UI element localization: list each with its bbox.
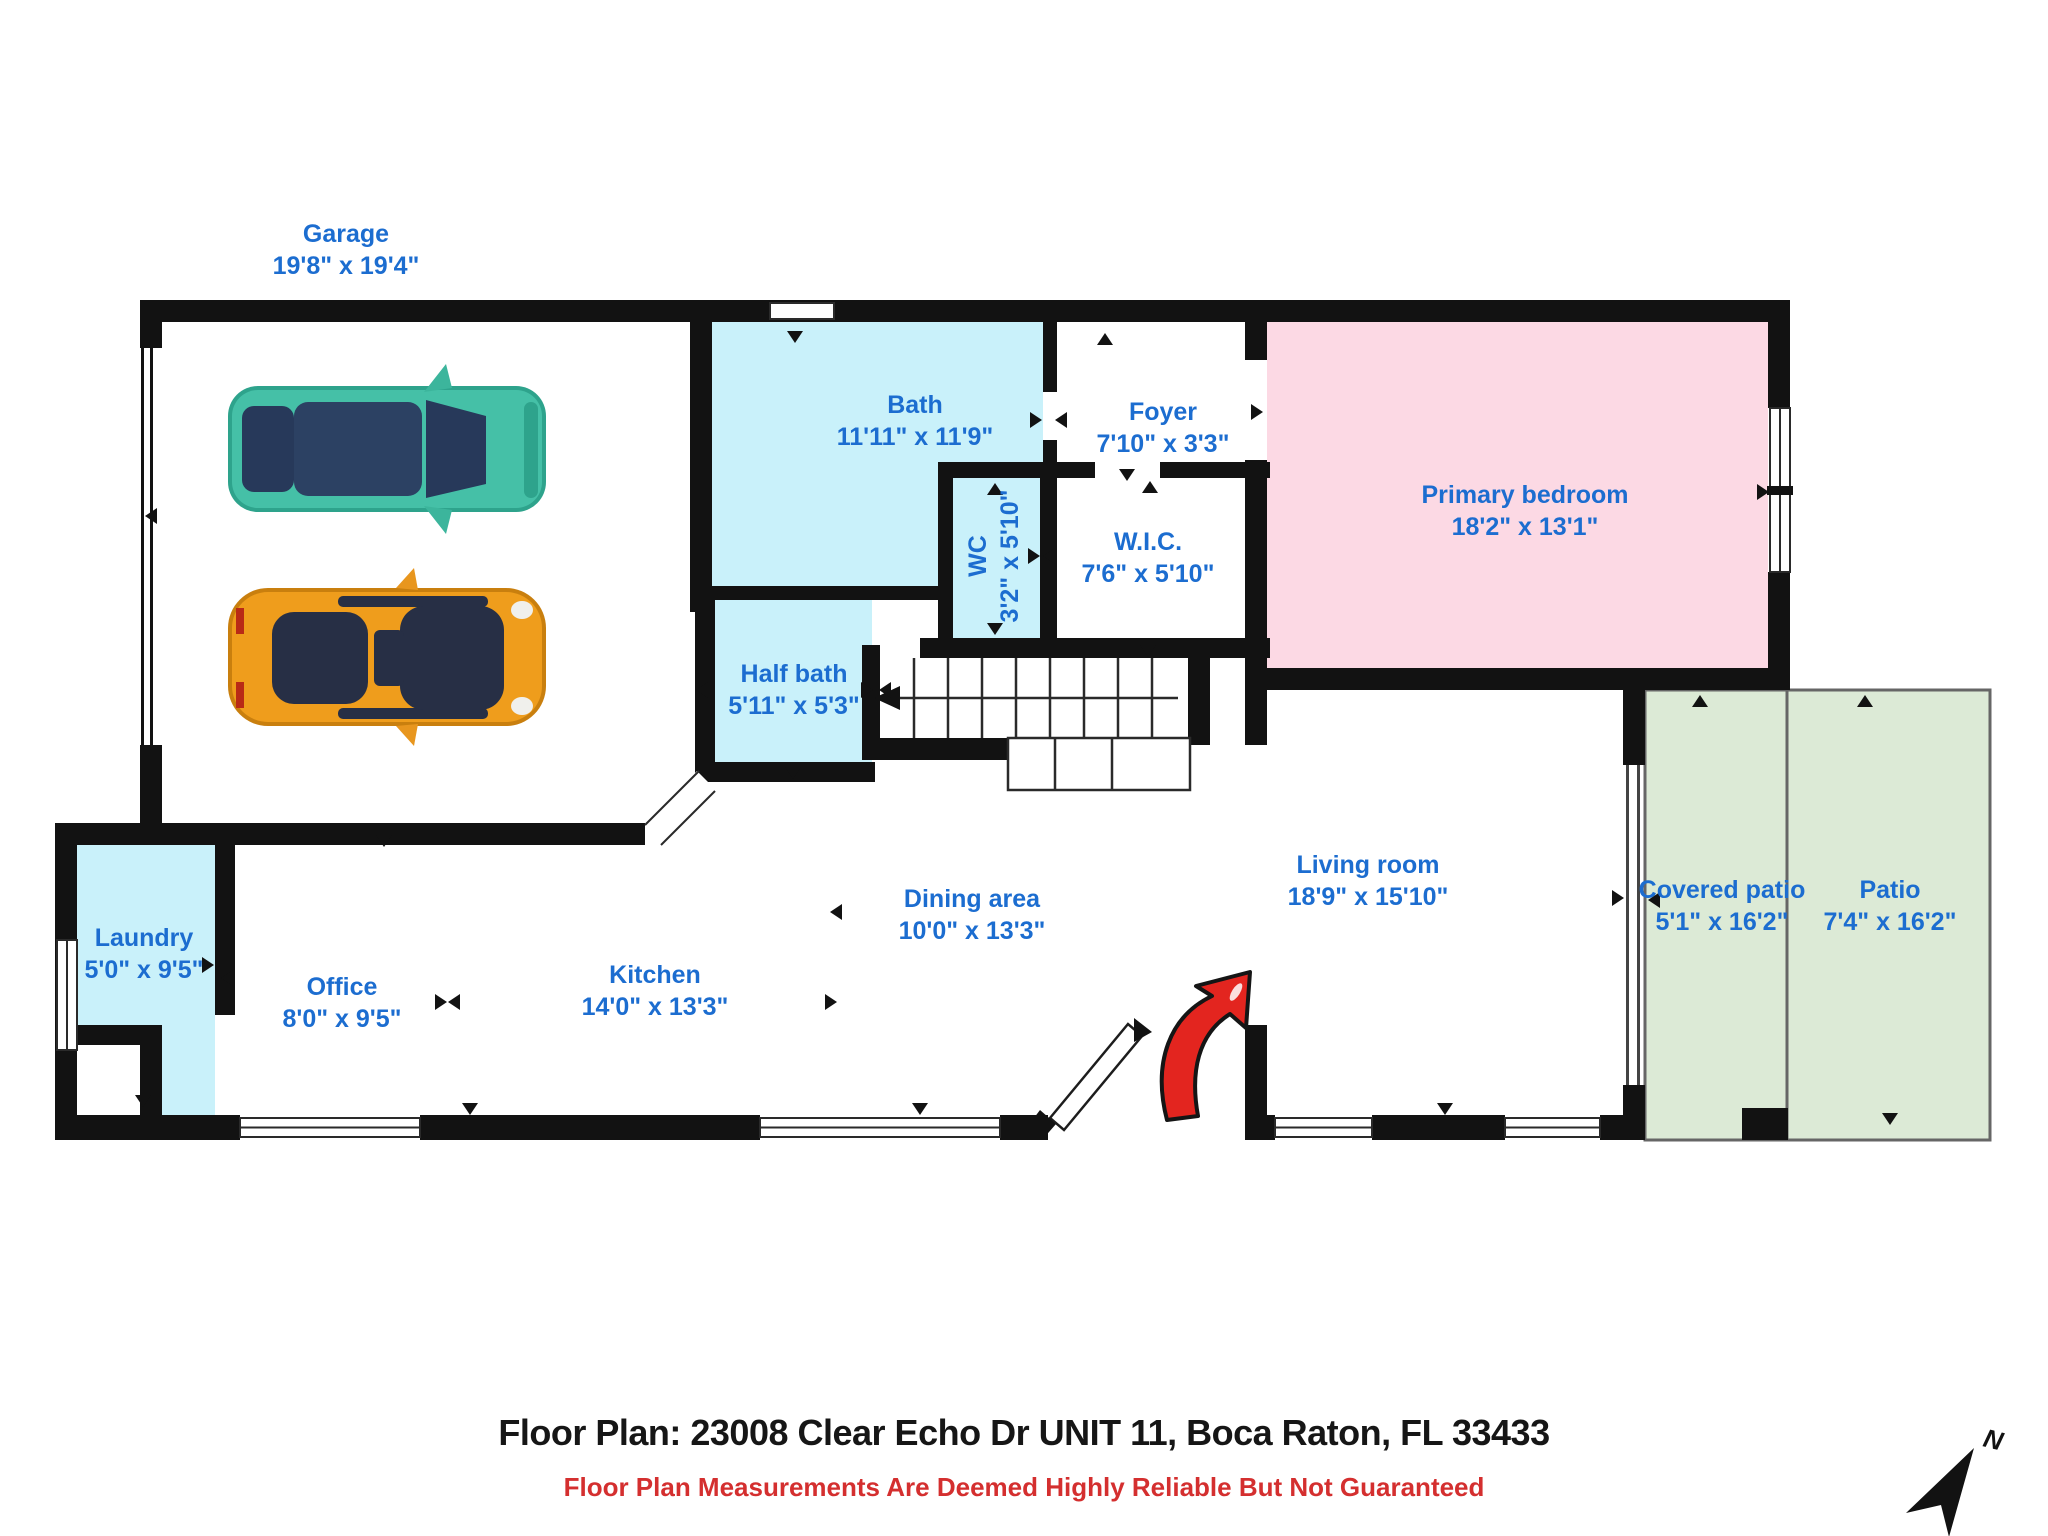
label-half-bath-dims: 5'11" x 5'3" (728, 692, 860, 720)
label-covered-patio-name: Covered patio (1639, 876, 1806, 904)
label-garage-dims: 19'8" x 19'4" (273, 252, 420, 280)
label-living-room-dims: 18'9" x 15'10" (1288, 883, 1449, 911)
label-primary-bedroom-dims: 18'2" x 13'1" (1452, 513, 1599, 541)
label-patio-dims: 7'4" x 16'2" (1824, 908, 1957, 936)
label-bath-dims: 11'11" x 11'9" (837, 423, 994, 451)
label-half-bath-name: Half bath (741, 660, 848, 688)
label-wc-dims: 3'2" x 5'10" (996, 490, 1024, 623)
label-laundry-dims: 5'0" x 9'5" (84, 956, 203, 984)
label-foyer-name: Foyer (1129, 398, 1197, 426)
floor-plan-page: Garage 19'8" x 19'4" Bath 11'11" x 11'9"… (0, 0, 2048, 1536)
room-bath (712, 322, 1043, 478)
label-bath-name: Bath (887, 391, 943, 419)
label-foyer-dims: 7'10" x 3'3" (1097, 430, 1230, 458)
garage-diagonal-door (645, 771, 715, 845)
footer-address-title: Floor Plan: 23008 Clear Echo Dr UNIT 11,… (0, 1412, 2048, 1454)
staircase (874, 658, 1190, 790)
floor-plan-svg: Garage 19'8" x 19'4" Bath 11'11" x 11'9"… (0, 0, 2048, 1536)
footer-disclaimer: Floor Plan Measurements Are Deemed Highl… (0, 1472, 2048, 1503)
car-suv (228, 364, 546, 534)
label-dining-area-dims: 10'0" x 13'3" (899, 917, 1046, 945)
label-dining-area-name: Dining area (904, 885, 1041, 913)
label-garage-name: Garage (303, 220, 389, 248)
label-wic-name: W.I.C. (1114, 528, 1182, 556)
label-wic-dims: 7'6" x 5'10" (1082, 560, 1215, 588)
label-wc-name: WC (964, 535, 992, 577)
label-covered-patio-dims: 5'1" x 16'2" (1656, 908, 1789, 936)
label-primary-bedroom-name: Primary bedroom (1421, 481, 1628, 509)
label-laundry-name: Laundry (95, 924, 194, 952)
label-kitchen-dims: 14'0" x 13'3" (582, 993, 729, 1021)
label-living-room-name: Living room (1296, 851, 1439, 879)
room-bath-lower (712, 470, 953, 595)
label-kitchen-name: Kitchen (609, 961, 701, 989)
car-sports (228, 568, 546, 746)
label-office-name: Office (307, 973, 378, 1001)
entry-door (1028, 1018, 1152, 1140)
label-patio-name: Patio (1859, 876, 1920, 904)
label-office-dims: 8'0" x 9'5" (282, 1005, 401, 1033)
entry-arrow (1162, 972, 1250, 1120)
